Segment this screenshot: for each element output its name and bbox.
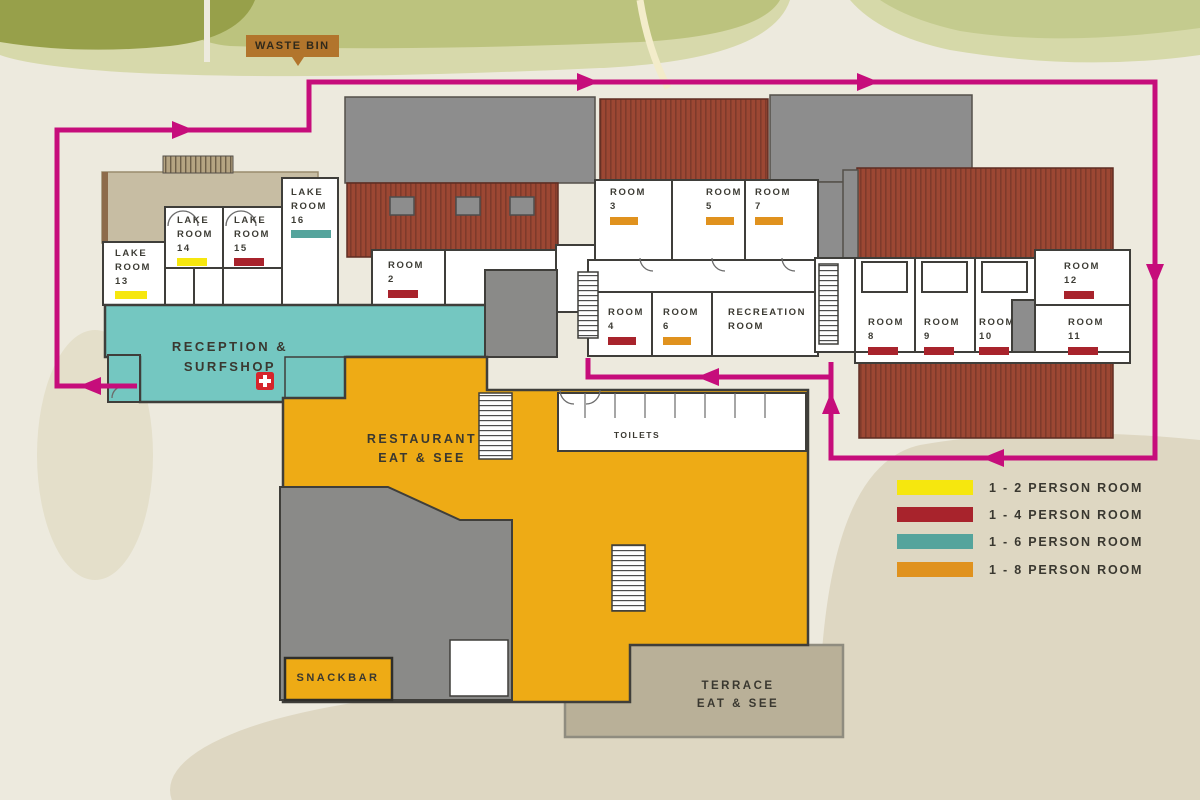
room-lake-16: LAKE ROOM 16	[291, 186, 331, 238]
room-name: ROOM 9	[924, 316, 960, 344]
room-name: LAKE ROOM 13	[115, 247, 151, 288]
room-lake-14: LAKE ROOM 14	[177, 214, 213, 266]
room-name: ROOM 3	[610, 186, 646, 214]
room-3: ROOM 3	[610, 186, 646, 225]
room-name: ROOM 8	[868, 316, 904, 344]
capacity-bar	[1064, 291, 1094, 299]
legend-item-1-2-person: 1 - 2 PERSON ROOM	[897, 480, 1143, 495]
waste-bin-label: WASTE BIN	[246, 35, 339, 57]
capacity-bar	[868, 347, 898, 355]
restaurant-label: RESTAURANT EAT & SEE	[352, 430, 492, 469]
legend-swatch-teal	[897, 534, 973, 549]
room-name: ROOM 2	[388, 259, 424, 287]
room-name: ROOM 11	[1068, 316, 1104, 344]
capacity-bar	[115, 291, 147, 299]
room-4: ROOM 4	[608, 306, 644, 345]
room-name: ROOM 5	[706, 186, 742, 214]
capacity-bar	[388, 290, 418, 298]
room-7: ROOM 7	[755, 186, 791, 225]
terrace-label: TERRACE EAT & SEE	[682, 678, 794, 714]
reception-label: RECEPTION & SURFSHOP	[150, 337, 310, 377]
legend-label: 1 - 2 PERSON ROOM	[989, 481, 1143, 495]
room-6: ROOM 6	[663, 306, 699, 345]
room-2: ROOM 2	[388, 259, 424, 298]
toilets-label: TOILETS	[592, 429, 682, 442]
legend-label: 1 - 6 PERSON ROOM	[989, 535, 1143, 549]
room-name: ROOM 12	[1064, 260, 1100, 288]
capacity-bar	[177, 258, 207, 266]
capacity-bar	[706, 217, 734, 225]
capacity-bar	[663, 337, 691, 345]
room-lake-13: LAKE ROOM 13	[115, 247, 151, 299]
room-8: ROOM 8	[868, 316, 904, 355]
legend-label: 1 - 4 PERSON ROOM	[989, 508, 1143, 522]
legend-swatch-orange	[897, 562, 973, 577]
legend-label: 1 - 8 PERSON ROOM	[989, 563, 1143, 577]
room-name: ROOM 4	[608, 306, 644, 334]
room-name: LAKE ROOM 16	[291, 186, 331, 227]
legend-swatch-yellow	[897, 480, 973, 495]
room-5: ROOM 5	[706, 186, 742, 225]
capacity-bar	[1068, 347, 1098, 355]
capacity-bar	[610, 217, 638, 225]
room-12: ROOM 12	[1064, 260, 1100, 299]
legend-item-1-6-person: 1 - 6 PERSON ROOM	[897, 534, 1143, 549]
surfcamp-site-map: WASTE BIN RECEPTION & SURFSHOP RESTAURAN…	[0, 0, 1200, 800]
capacity-bar	[755, 217, 783, 225]
room-lake-15: LAKE ROOM 15	[234, 214, 270, 266]
staircase	[612, 545, 645, 611]
room-name: LAKE ROOM 14	[177, 214, 213, 255]
snackbar-label: SNACKBAR	[288, 670, 388, 687]
room-name: ROOM 6	[663, 306, 699, 334]
room-name: ROOM 7	[755, 186, 791, 214]
capacity-bar	[924, 347, 954, 355]
toilets-block	[558, 393, 806, 451]
capacity-bar	[291, 230, 331, 238]
room-name: LAKE ROOM 15	[234, 214, 270, 255]
legend-item-1-4-person: 1 - 4 PERSON ROOM	[897, 507, 1143, 522]
room-10: ROOM 10	[979, 316, 1015, 355]
capacity-bar	[608, 337, 636, 345]
terrain-greenery	[0, 0, 1200, 88]
capacity-bar	[234, 258, 264, 266]
floor-plan-svg	[0, 0, 1200, 800]
recreation-room-label: RECREATION ROOM	[728, 306, 818, 334]
room-9: ROOM 9	[924, 316, 960, 355]
room-name: ROOM 10	[979, 316, 1015, 344]
room-11: ROOM 11	[1068, 316, 1104, 355]
first-aid-cross-icon	[256, 372, 274, 390]
capacity-bar	[979, 347, 1009, 355]
legend-item-1-8-person: 1 - 8 PERSON ROOM	[897, 562, 1143, 577]
legend-swatch-red	[897, 507, 973, 522]
